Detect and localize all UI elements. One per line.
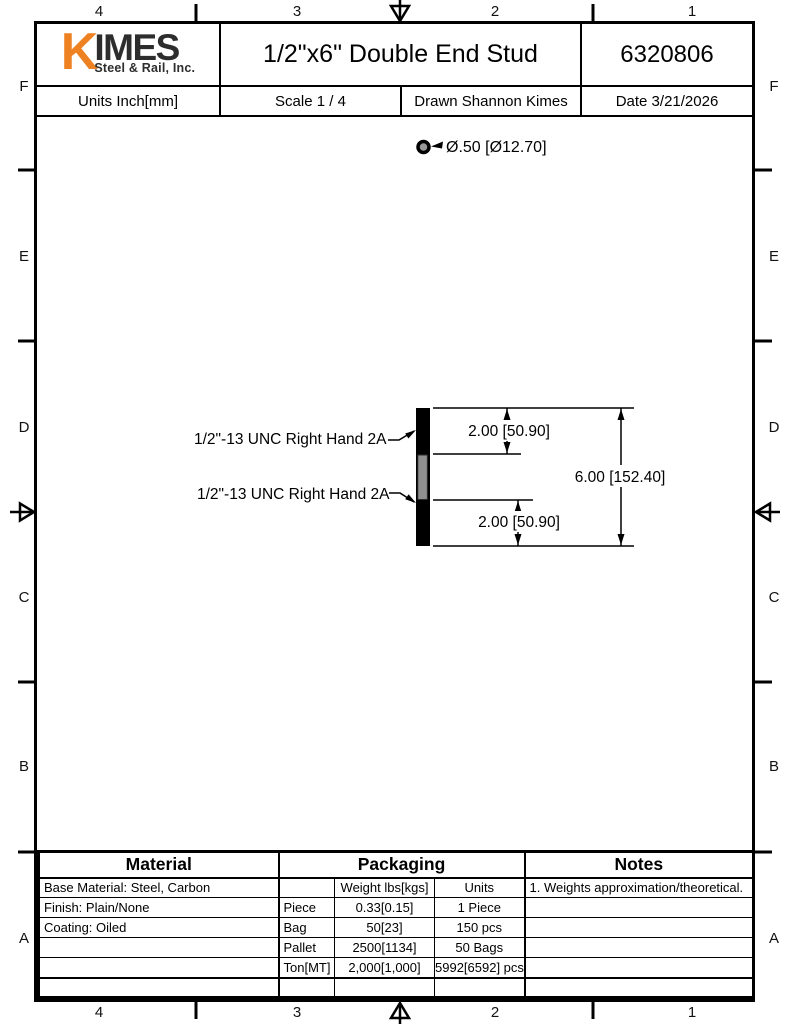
note-empty [525,938,754,958]
packaging-col-weight: Weight lbs[kgs] [335,878,435,898]
logo-wordmark: K IMES Steel & Rail, Inc. [61,34,195,75]
packaging-row-label: Pallet [279,938,335,958]
note-empty [525,898,754,918]
title-block: K IMES Steel & Rail, Inc. 1/2"x6" Double… [37,24,752,117]
spec-table: Material Packaging Notes Base Material: … [37,850,755,999]
zone-bottom-4: 4 [85,1003,113,1021]
center-marker-left [10,504,34,521]
note-1: 1. Weights approximation/theoretical. [525,878,754,898]
material-empty [39,938,279,958]
logo-k-text: K [61,34,97,71]
material-base: Base Material: Steel, Carbon [39,878,279,898]
note-empty [525,958,754,978]
part-number: 6320806 [580,24,752,85]
packaging-row-weight: 50[23] [335,918,435,938]
packaging-row-units: 5992[6592] pcs [435,958,525,978]
material-coating: Coating: Oiled [39,918,279,938]
zone-right-d: D [760,418,788,436]
zone-right-b: B [760,757,788,775]
zone-top-4: 4 [85,2,113,20]
logo-imes-text: IMES [94,34,195,61]
packaging-row-label: Piece [279,898,335,918]
drawing-sheet: 4 3 2 1 4 3 2 1 F E D C B A F E D C B A … [0,0,791,1024]
drawing-title: 1/2"x6" Double End Stud [219,24,580,85]
center-marker-top [391,0,409,21]
material-finish: Finish: Plain/None [39,898,279,918]
packaging-row-label: Ton[MT] [279,958,335,978]
material-header: Material [39,852,279,878]
material-empty [39,978,279,998]
packaging-row-units: 50 Bags [435,938,525,958]
zone-bottom-2: 2 [481,1003,509,1021]
zone-top-3: 3 [283,2,311,20]
kimes-logo: K IMES Steel & Rail, Inc. [37,24,219,85]
logo-subtitle: Steel & Rail, Inc. [94,62,195,75]
notes-header: Notes [525,852,754,878]
date-cell: Date 3/21/2026 [580,87,752,115]
drawn-by-cell: Drawn Shannon Kimes [400,87,580,115]
packaging-units-empty [435,978,525,998]
scale-cell: Scale 1 / 4 [219,87,400,115]
packaging-row-weight: 2,000[1,000] [335,958,435,978]
zone-top-2: 2 [481,2,509,20]
zone-top-1: 1 [678,2,706,20]
packaging-row-weight: 0.33[0.15] [335,898,435,918]
packaging-weight-empty [335,978,435,998]
packaging-row-units: 150 pcs [435,918,525,938]
zone-bottom-3: 3 [283,1003,311,1021]
packaging-row-weight: 2500[1134] [335,938,435,958]
zone-right-f: F [760,77,788,95]
note-empty [525,978,754,998]
units-cell: Units Inch[mm] [37,87,219,115]
note-empty [525,918,754,938]
center-marker-bottom [391,1003,409,1024]
zone-right-c: C [760,588,788,606]
material-empty [39,958,279,978]
packaging-col-units: Units [435,878,525,898]
zone-right-a: A [760,929,788,947]
zone-right-e: E [760,247,788,265]
center-marker-right [756,504,780,521]
packaging-row-label: Bag [279,918,335,938]
zone-bottom-1: 1 [678,1003,706,1021]
packaging-label-empty [279,978,335,998]
packaging-row-units: 1 Piece [435,898,525,918]
packaging-label-empty [279,878,335,898]
packaging-header: Packaging [279,852,525,878]
